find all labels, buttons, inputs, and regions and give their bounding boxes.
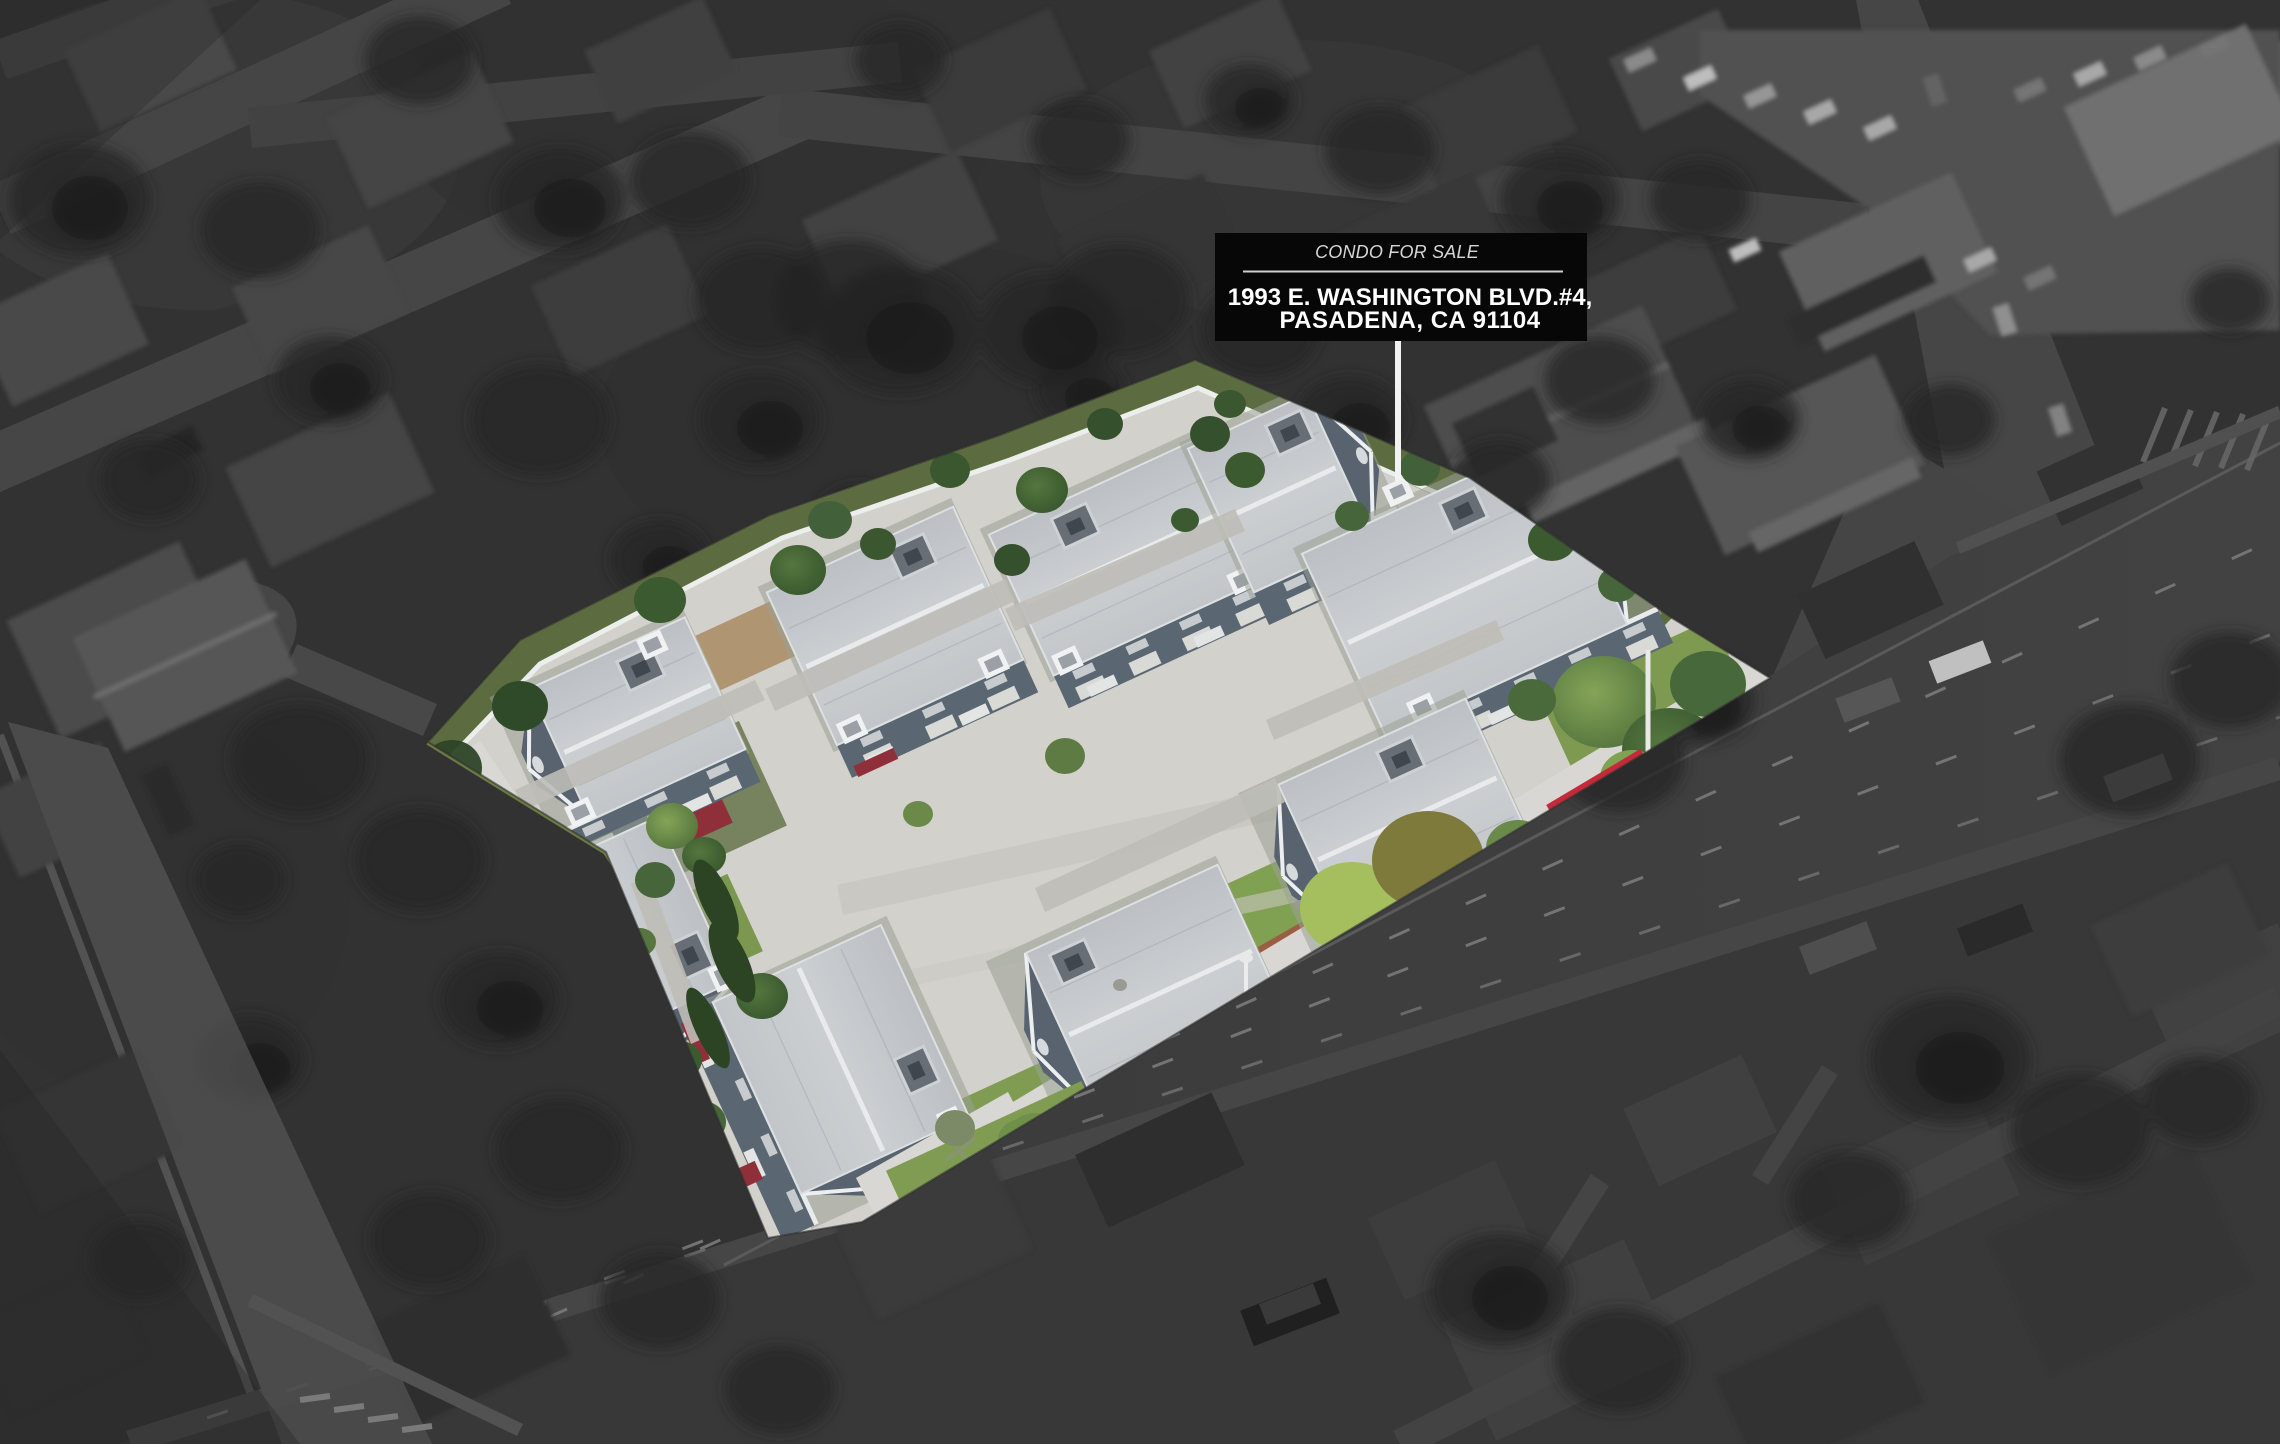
svg-text:CONDO FOR SALE: CONDO FOR SALE — [1315, 242, 1480, 262]
svg-text:PASADENA, CA 91104: PASADENA, CA 91104 — [1279, 307, 1540, 334]
